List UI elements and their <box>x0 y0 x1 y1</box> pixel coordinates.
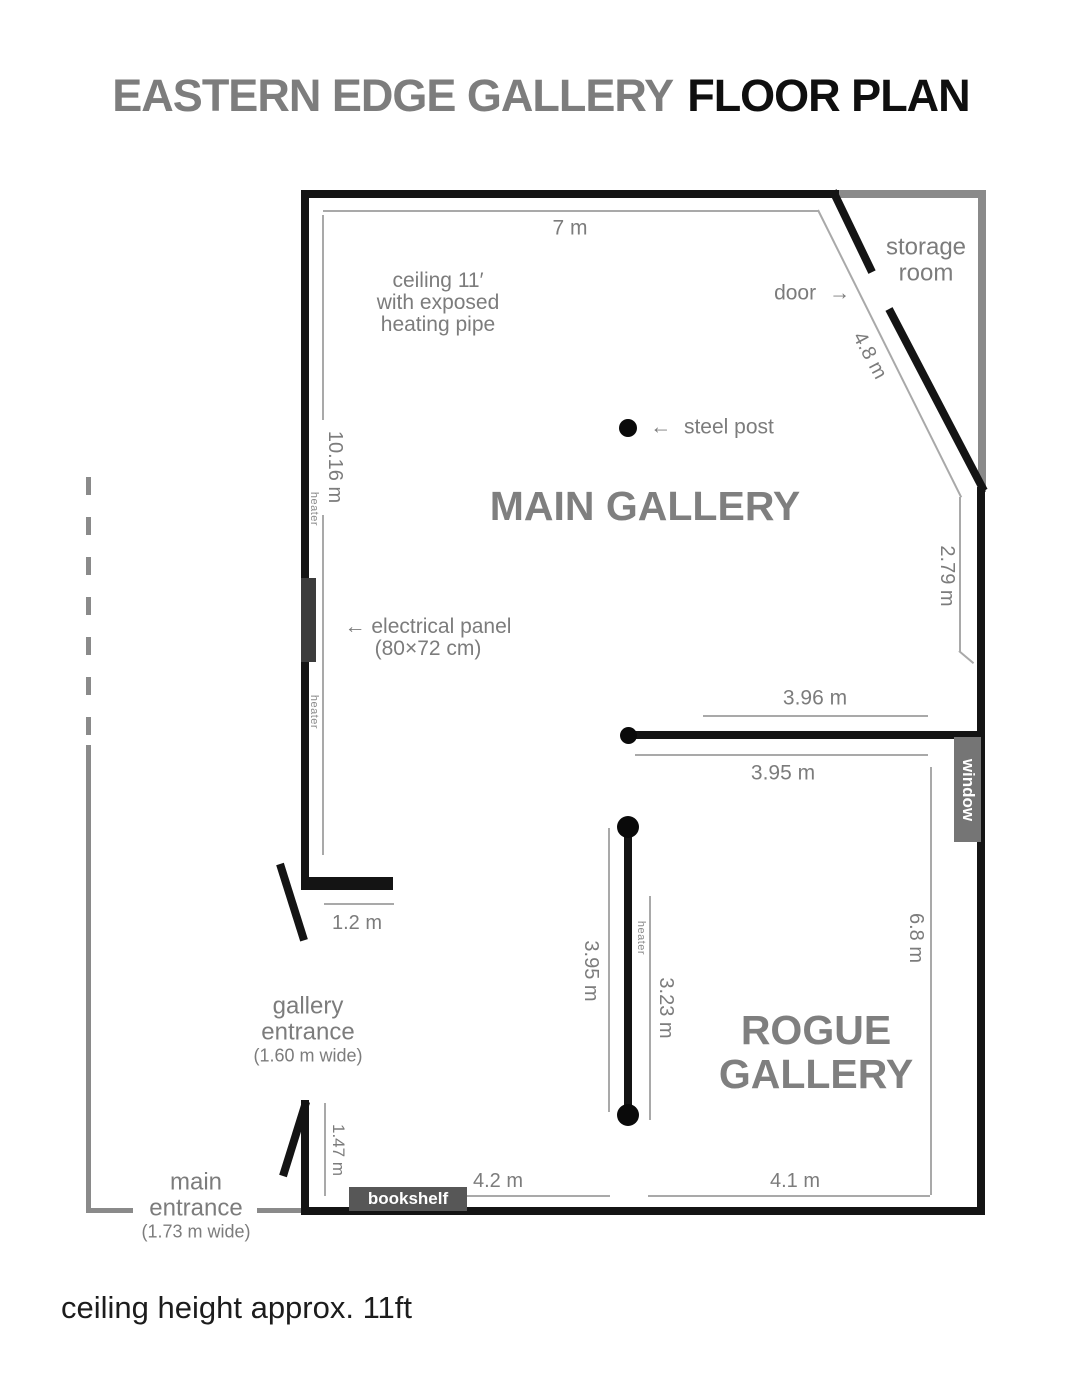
ceiling-note: ceiling 11′ with exposed heating pipe <box>377 270 500 336</box>
dim-line-left-lower <box>322 515 324 855</box>
page-title: EASTERN EDGE GALLERYFLOOR PLAN <box>0 70 1082 122</box>
rogue-heater-wall-top-dot <box>617 816 639 838</box>
gallery-entrance-annotation: gallery entrance (1.60 m wide) <box>253 994 362 1067</box>
dim-stub: 1.2 m <box>332 913 382 935</box>
dim-divider-below: 3.95 m <box>751 763 815 786</box>
main-entrance-line1: main <box>141 1170 250 1196</box>
rogue-gallery-label: ROGUE GALLERY <box>719 1009 913 1097</box>
bookshelf-label: bookshelf <box>368 1189 448 1209</box>
electrical-panel-label: electrical panel <box>371 615 511 638</box>
window-label: window <box>958 758 978 820</box>
dim-line-stub <box>324 903 394 905</box>
dim-line-rogue-bottom <box>648 1195 930 1197</box>
dim-right-upper: 2.79 m <box>935 545 957 606</box>
dim-bottom-left: 4.2 m <box>473 1171 523 1193</box>
title-suffix: FLOOR PLAN <box>687 70 969 121</box>
left-arrow-icon: ← <box>345 615 366 638</box>
window: window <box>954 737 981 842</box>
left-wall <box>301 190 309 890</box>
steel-post-annotation: ← steel post <box>650 417 774 440</box>
right-wall <box>977 487 985 1215</box>
divider-wall-post-dot <box>620 727 637 744</box>
gallery-entrance-line1: gallery <box>253 994 362 1020</box>
bookshelf: bookshelf <box>349 1187 467 1211</box>
dim-line-entry-depth <box>324 1103 326 1196</box>
electrical-panel-annotation: ← electrical panel (80×72 cm) <box>345 616 512 660</box>
dim-rogue-right: 6.8 m <box>904 913 926 963</box>
dim-line-left-upper <box>322 215 324 420</box>
ceiling-note-line2: with exposed <box>377 292 500 314</box>
storage-top-wall <box>835 190 986 198</box>
gallery-entrance-line2: entrance <box>253 1020 362 1046</box>
dim-line-right-upper <box>959 497 961 652</box>
ceiling-note-line1: ceiling 11′ <box>377 270 500 292</box>
gallery-name: EASTERN EDGE GALLERY <box>112 70 673 121</box>
exterior-boundary-bottom-left <box>86 1208 133 1213</box>
dim-line-divider-below <box>635 754 928 756</box>
dim-entry-depth: 1.47 m <box>329 1124 347 1176</box>
electrical-panel <box>301 578 316 662</box>
gallery-entrance-width: (1.60 m wide) <box>253 1046 362 1066</box>
top-wall <box>301 190 839 198</box>
electrical-panel-size: (80×72 cm) <box>345 638 512 660</box>
dim-line-rogue-heater-right <box>649 896 651 1120</box>
dim-top: 7 m <box>552 218 587 241</box>
dim-rogue-heater-right: 3.23 m <box>654 977 676 1038</box>
left-arrow-icon: ← <box>650 416 671 439</box>
dim-line-bottom-left <box>467 1195 610 1197</box>
heater-label-left-upper: heater <box>307 492 319 526</box>
rogue-gallery-line1: ROGUE <box>719 1009 913 1053</box>
dim-rogue-heater-left: 3.95 m <box>579 940 601 1001</box>
heater-label-left-lower: heater <box>307 695 319 729</box>
dim-diagonal: 4.8 m <box>848 329 891 383</box>
main-entrance-line2: entrance <box>141 1196 250 1222</box>
electrical-panel-line1: ← electrical panel <box>345 616 512 638</box>
storage-room-label: storage room <box>886 235 966 288</box>
heater-label-rogue: heater <box>634 921 646 955</box>
ceiling-height-caption: ceiling height approx. 11ft <box>61 1290 412 1326</box>
main-gallery-label: MAIN GALLERY <box>490 484 801 528</box>
main-entrance-width: (1.73 m wide) <box>141 1222 250 1242</box>
right-arrow-icon: → <box>829 282 850 305</box>
main-entrance-annotation: main entrance (1.73 m wide) <box>141 1170 250 1243</box>
storage-room-line2: room <box>886 261 966 287</box>
dim-line-rogue-right <box>930 767 932 1195</box>
door-annotation: door → <box>774 283 850 306</box>
diagonal-wall-lower <box>885 307 987 492</box>
exterior-boundary-solid <box>86 745 91 1213</box>
rogue-heater-wall-bottom-dot <box>617 1104 639 1126</box>
exterior-boundary-bottom-right <box>257 1208 304 1213</box>
storage-room-line1: storage <box>886 235 966 261</box>
rogue-heater-wall <box>624 827 632 1115</box>
dim-line-top <box>323 210 818 212</box>
steel-post-dot <box>619 419 637 437</box>
storage-right-wall <box>978 190 986 492</box>
door-label: door <box>774 282 816 305</box>
diagonal-wall-upper <box>829 189 875 274</box>
dim-line-rogue-heater-left <box>608 828 610 1112</box>
floor-plan-page: EASTERN EDGE GALLERYFLOOR PLAN window bo… <box>0 0 1082 1400</box>
dim-rogue-bottom: 4.1 m <box>770 1171 820 1193</box>
steel-post-label: steel post <box>684 416 774 439</box>
divider-wall <box>628 731 979 739</box>
dim-line-right-upper-tick <box>958 650 974 664</box>
ceiling-note-line3: heating pipe <box>377 314 500 336</box>
interior-wall-stub <box>303 877 393 890</box>
rogue-gallery-line2: GALLERY <box>719 1053 913 1097</box>
dim-left: 10.16 m <box>323 431 345 503</box>
dim-line-divider-above <box>703 715 928 717</box>
dim-divider-above: 3.96 m <box>783 688 847 711</box>
exterior-boundary-dashed <box>86 477 91 745</box>
